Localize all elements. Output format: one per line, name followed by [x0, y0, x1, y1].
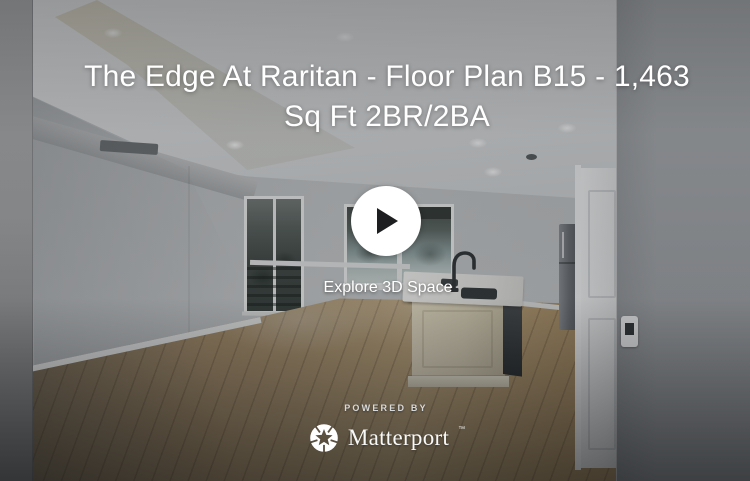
tour-title-line2: Sq Ft 2BR/2BA [12, 97, 750, 137]
play-button[interactable] [351, 186, 421, 256]
explore-3d-space-label[interactable]: Explore 3D Space [13, 279, 750, 297]
trademark-symbol: ™ [458, 426, 465, 433]
matterport-logo-link[interactable]: Matterport ™ [11, 421, 750, 455]
matterport-pinwheel-icon [308, 423, 340, 453]
matterport-embed-player[interactable]: The Edge At Raritan - Floor Plan B15 - 1… [0, 0, 750, 481]
play-icon [351, 186, 421, 256]
tour-title-line1: The Edge At Raritan - Floor Plan B15 - 1… [12, 57, 750, 97]
powered-by-label: POWERED BY [11, 403, 750, 413]
matterport-wordmark: Matterport [348, 425, 449, 451]
tour-title: The Edge At Raritan - Floor Plan B15 - 1… [12, 57, 750, 137]
